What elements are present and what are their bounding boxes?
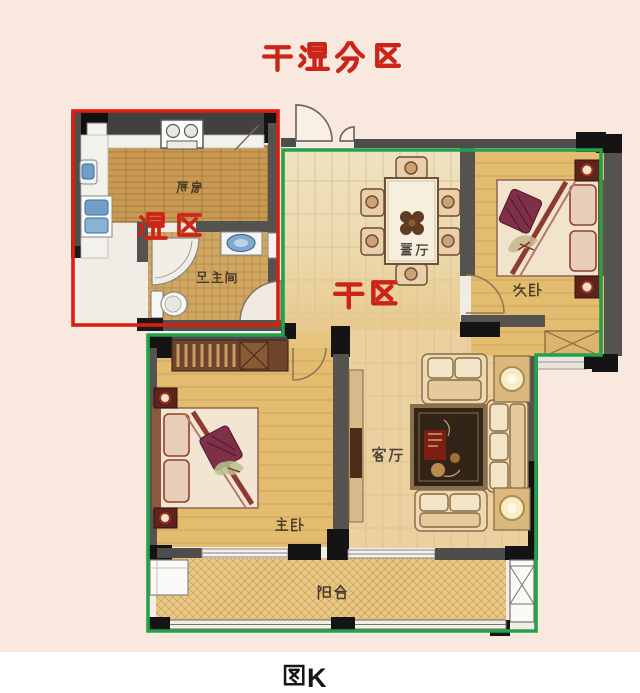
svg-text:K: K bbox=[307, 663, 327, 693]
